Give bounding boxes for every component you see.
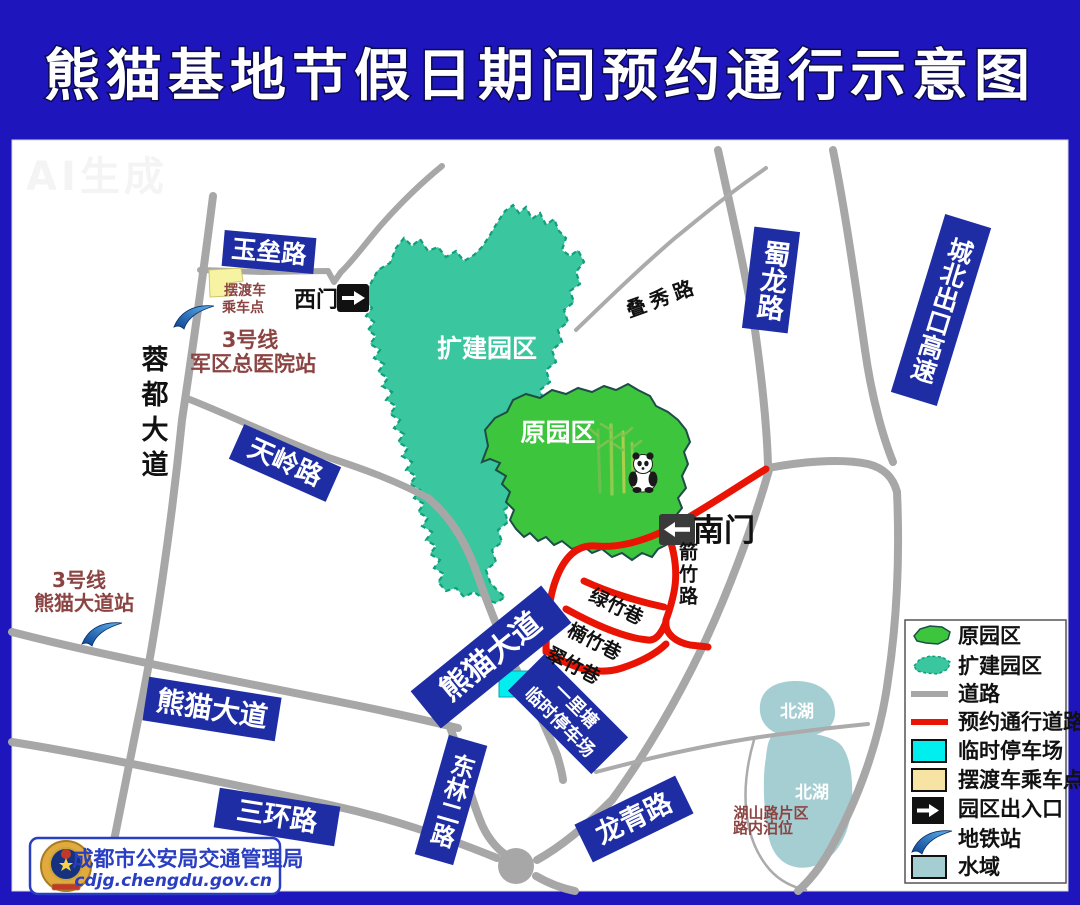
ai-watermark: AI生成 bbox=[26, 154, 168, 200]
metro-junqu-line1: 3号线 bbox=[222, 328, 279, 352]
legend-label-3: 预约通行道路 bbox=[958, 710, 1080, 734]
legend-label-6: 园区出入口 bbox=[958, 797, 1063, 821]
west-gate-sign bbox=[337, 284, 369, 312]
north-lake-label-upper: 北湖 bbox=[780, 702, 814, 722]
legend-label-8: 水域 bbox=[958, 855, 1000, 879]
legend-green-area-icon bbox=[914, 626, 950, 644]
legend-label-1: 扩建园区 bbox=[958, 654, 1042, 678]
shuttle-point-label-1: 摆渡车 bbox=[224, 282, 266, 299]
expanded-park-label: 扩建园区 bbox=[437, 334, 537, 363]
legend: 原园区 扩建园区 道路 预约通行道路 临时停车场 摆渡车乘车点 园区出入口 地铁… bbox=[905, 620, 1080, 883]
road-label-jianzhu: 箭竹路 bbox=[676, 541, 699, 608]
north-lake-label-lower: 北湖 bbox=[795, 783, 829, 803]
south-gate-sign bbox=[659, 514, 695, 545]
roadside-parking-line2: 路内泊位 bbox=[733, 819, 793, 837]
agency-website: cdjg.chengdu.gov.cn bbox=[74, 871, 272, 891]
map-canvas: 熊猫基地节假日期间预约通行示意图 AI生成 bbox=[0, 0, 1080, 905]
panda-base-access-map: 熊猫基地节假日期间预约通行示意图 AI生成 bbox=[0, 0, 1080, 905]
legend-gate-icon bbox=[912, 797, 944, 824]
south-gate-label: 南门 bbox=[693, 513, 755, 549]
page-title: 熊猫基地节假日期间预约通行示意图 bbox=[44, 44, 1036, 109]
legend-shuttle-point-icon bbox=[912, 769, 946, 791]
west-gate-label: 西门 bbox=[294, 287, 338, 313]
original-park-label: 原园区 bbox=[520, 418, 595, 447]
legend-label-4: 临时停车场 bbox=[958, 739, 1063, 763]
legend-label-2: 道路 bbox=[958, 682, 1001, 706]
legend-label-5: 摆渡车乘车点 bbox=[958, 768, 1080, 792]
legend-label-7: 地铁站 bbox=[958, 827, 1021, 851]
metro-junqu-line2: 军区总医院站 bbox=[190, 352, 316, 376]
metro-panda-line2: 熊猫大道站 bbox=[34, 591, 134, 615]
roundabout bbox=[498, 848, 534, 884]
road-label-rongdu: 蓉都大道 bbox=[137, 345, 170, 485]
legend-label-0: 原园区 bbox=[958, 624, 1021, 648]
footer-agency: 成都市公安局交通管理局 cdjg.chengdu.gov.cn bbox=[30, 838, 304, 894]
agency-name: 成都市公安局交通管理局 bbox=[73, 847, 304, 871]
shuttle-point-label-2: 乘车点 bbox=[221, 299, 264, 316]
legend-water-icon bbox=[912, 856, 946, 878]
legend-temp-parking-icon bbox=[912, 740, 946, 762]
metro-panda-line1: 3号线 bbox=[52, 568, 106, 592]
